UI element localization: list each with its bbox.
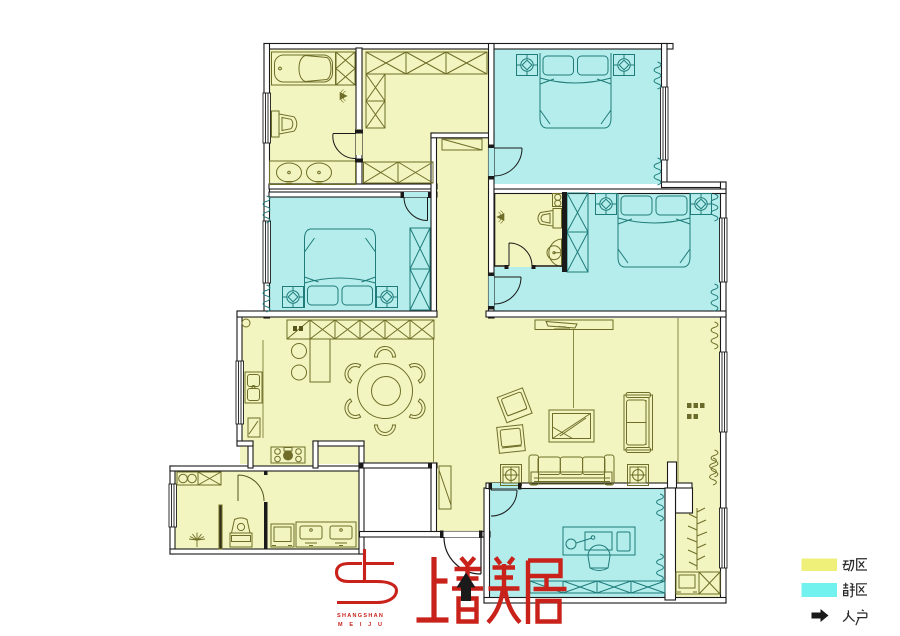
svg-text:MEIJU: MEIJU — [338, 622, 389, 628]
svg-text:SHANGSHAN: SHANGSHAN — [337, 613, 384, 619]
